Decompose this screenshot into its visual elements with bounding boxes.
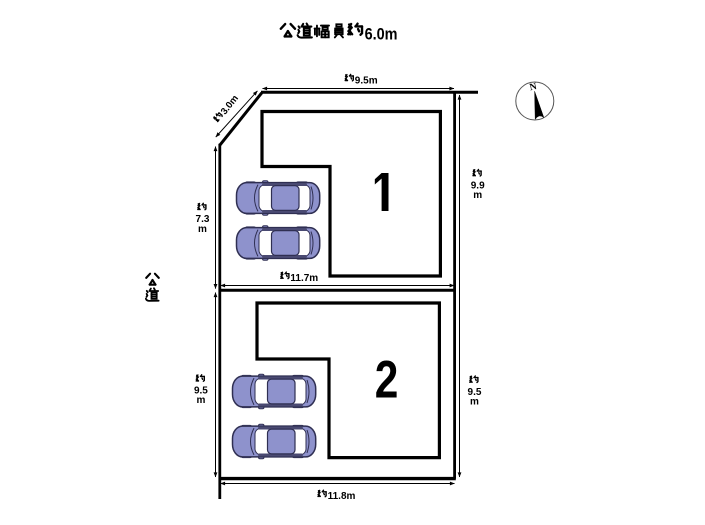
- svg-text:9.5m: 9.5m: [355, 76, 378, 87]
- svg-text:N: N: [529, 81, 538, 93]
- svg-text:m: m: [198, 224, 207, 235]
- svg-text:m: m: [470, 397, 479, 408]
- svg-text:m: m: [196, 395, 205, 406]
- svg-text:11.8m: 11.8m: [328, 491, 356, 502]
- svg-text:2: 2: [375, 351, 399, 410]
- svg-text:11.7m: 11.7m: [290, 273, 318, 284]
- svg-text:6.0m: 6.0m: [365, 25, 398, 43]
- svg-text:m: m: [473, 190, 482, 201]
